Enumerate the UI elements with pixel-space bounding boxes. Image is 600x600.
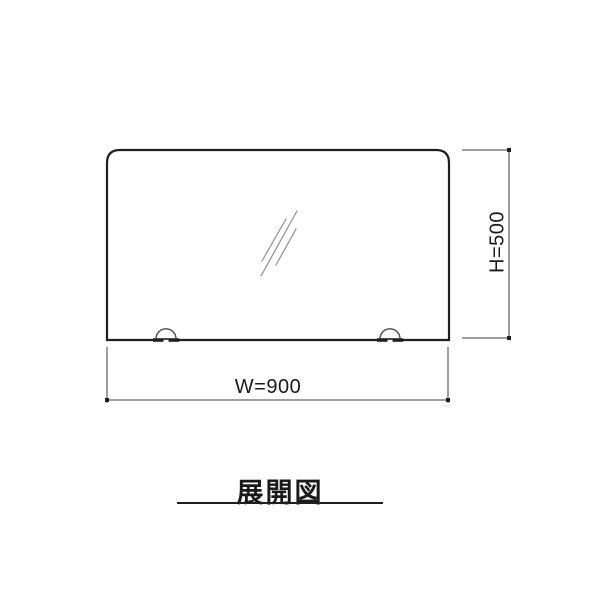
height-dimension-label: H=500 <box>487 211 510 273</box>
drawing-sheet: W=900 H=500 展開図 <box>0 0 600 600</box>
panel-elevation-drawing <box>0 0 600 600</box>
drawing-caption: 展開図 <box>237 471 324 510</box>
width-dimension-label: W=900 <box>235 376 301 399</box>
mounting-clip-right-icon <box>377 329 403 343</box>
mounting-clip-left-icon <box>153 329 179 343</box>
caption-underline <box>177 502 383 504</box>
glass-reflection-marks-icon <box>261 211 297 276</box>
